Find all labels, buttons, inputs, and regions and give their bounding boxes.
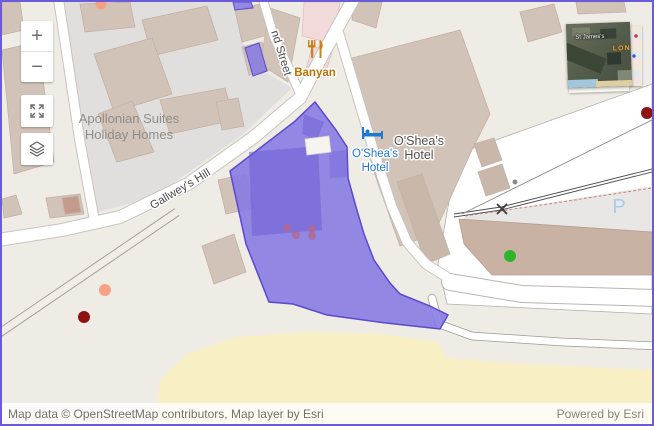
zoom-in-button[interactable]: + [21,21,53,51]
poi-dot-pink[interactable] [292,231,300,239]
map-canvas[interactable]: Apollonian Suites Holiday Homes Gallwey'… [2,2,652,424]
satellite-block [618,70,632,80]
attribution-bar: Map data © OpenStreetMap contributors, M… [2,403,652,424]
poi-dot-green[interactable] [504,250,516,262]
inset-label-st-james: St James's [575,34,604,41]
area-label-apollonian: Holiday Homes [85,127,174,142]
fullscreen-button[interactable] [21,95,53,127]
poi-dot-pink[interactable] [308,225,316,233]
layers-button[interactable] [21,133,53,165]
inset-label-lon: LON [613,45,631,53]
poi-label-oshea: O'Shea's [352,148,398,160]
poi-dot-pink[interactable] [283,224,291,232]
satellite-park-block [566,42,606,74]
satellite-block [607,52,621,64]
zoom-out-button[interactable]: − [21,52,53,82]
poi-dot-salmon[interactable] [99,284,111,296]
poi-dot-pink[interactable] [308,232,316,240]
parking-label: P [612,196,625,218]
area-label-apollonian: Apollonian Suites [79,111,180,126]
fullscreen-icon [29,103,45,119]
poi-label-oshea: Hotel [362,162,389,174]
basemap-thumb-satellite: St James's LON [566,22,632,88]
layers-icon [28,140,46,158]
track-node-dot [513,180,518,185]
satellite-water [568,79,598,88]
building-label-oshea: O'Shea's [394,134,444,148]
zoom-control: + − [21,21,53,82]
selected-parcel-building [249,146,322,236]
powered-by-esri: Powered by Esri [557,407,652,421]
building-label-oshea: Hotel [404,148,433,162]
satellite-sand [596,80,632,87]
attribution-text: Map data © OpenStreetMap contributors, M… [2,407,557,421]
poi-dot-dark-red[interactable] [78,311,90,323]
map-widget: Apollonian Suites Holiday Homes Gallwey'… [0,0,654,426]
selected-parcel-sliver[interactable] [233,2,253,10]
basemap-toggle-widget[interactable]: St James's LON [563,18,645,94]
poi-label-banyan: Banyan [294,67,336,79]
selected-parcel-building [329,150,347,178]
notch-building [305,136,331,155]
